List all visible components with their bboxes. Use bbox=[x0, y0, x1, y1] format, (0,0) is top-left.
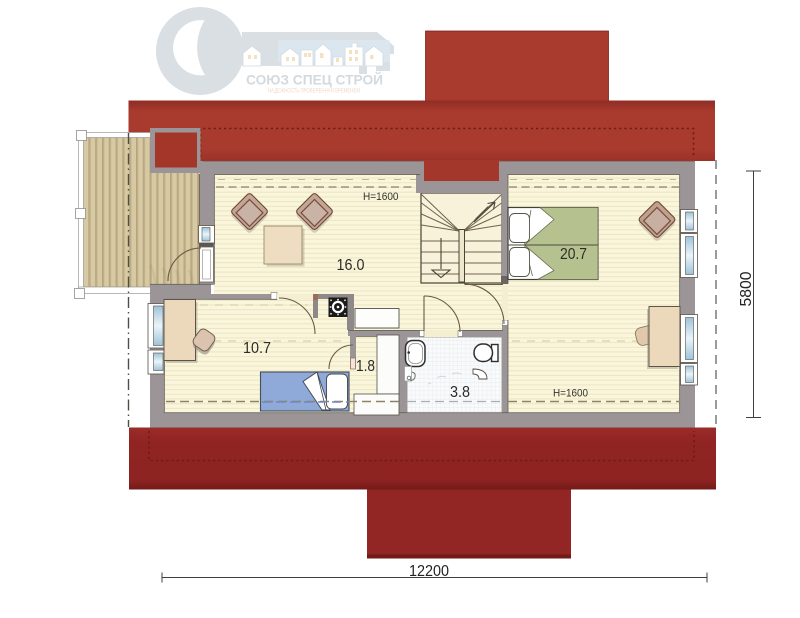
svg-text:3.8: 3.8 bbox=[450, 384, 470, 401]
svg-text:5800: 5800 bbox=[738, 271, 755, 306]
svg-text:10.7: 10.7 bbox=[243, 340, 271, 357]
svg-text:20.7: 20.7 bbox=[560, 246, 587, 263]
svg-text:1.8: 1.8 bbox=[356, 358, 375, 375]
svg-text:16.0: 16.0 bbox=[337, 257, 365, 274]
svg-text:12200: 12200 bbox=[409, 563, 449, 580]
svg-text:H=1600: H=1600 bbox=[363, 191, 399, 203]
svg-text:НАДЕЖНОСТЬ ПРОВЕРЕННАЯ ВРЕМЕНЕ: НАДЕЖНОСТЬ ПРОВЕРЕННАЯ ВРЕМЕНЕМ bbox=[268, 88, 360, 95]
svg-text:СОЮЗ СПЕЦ СТРОЙ: СОЮЗ СПЕЦ СТРОЙ bbox=[246, 71, 383, 88]
svg-text:H=1600: H=1600 bbox=[553, 388, 588, 400]
